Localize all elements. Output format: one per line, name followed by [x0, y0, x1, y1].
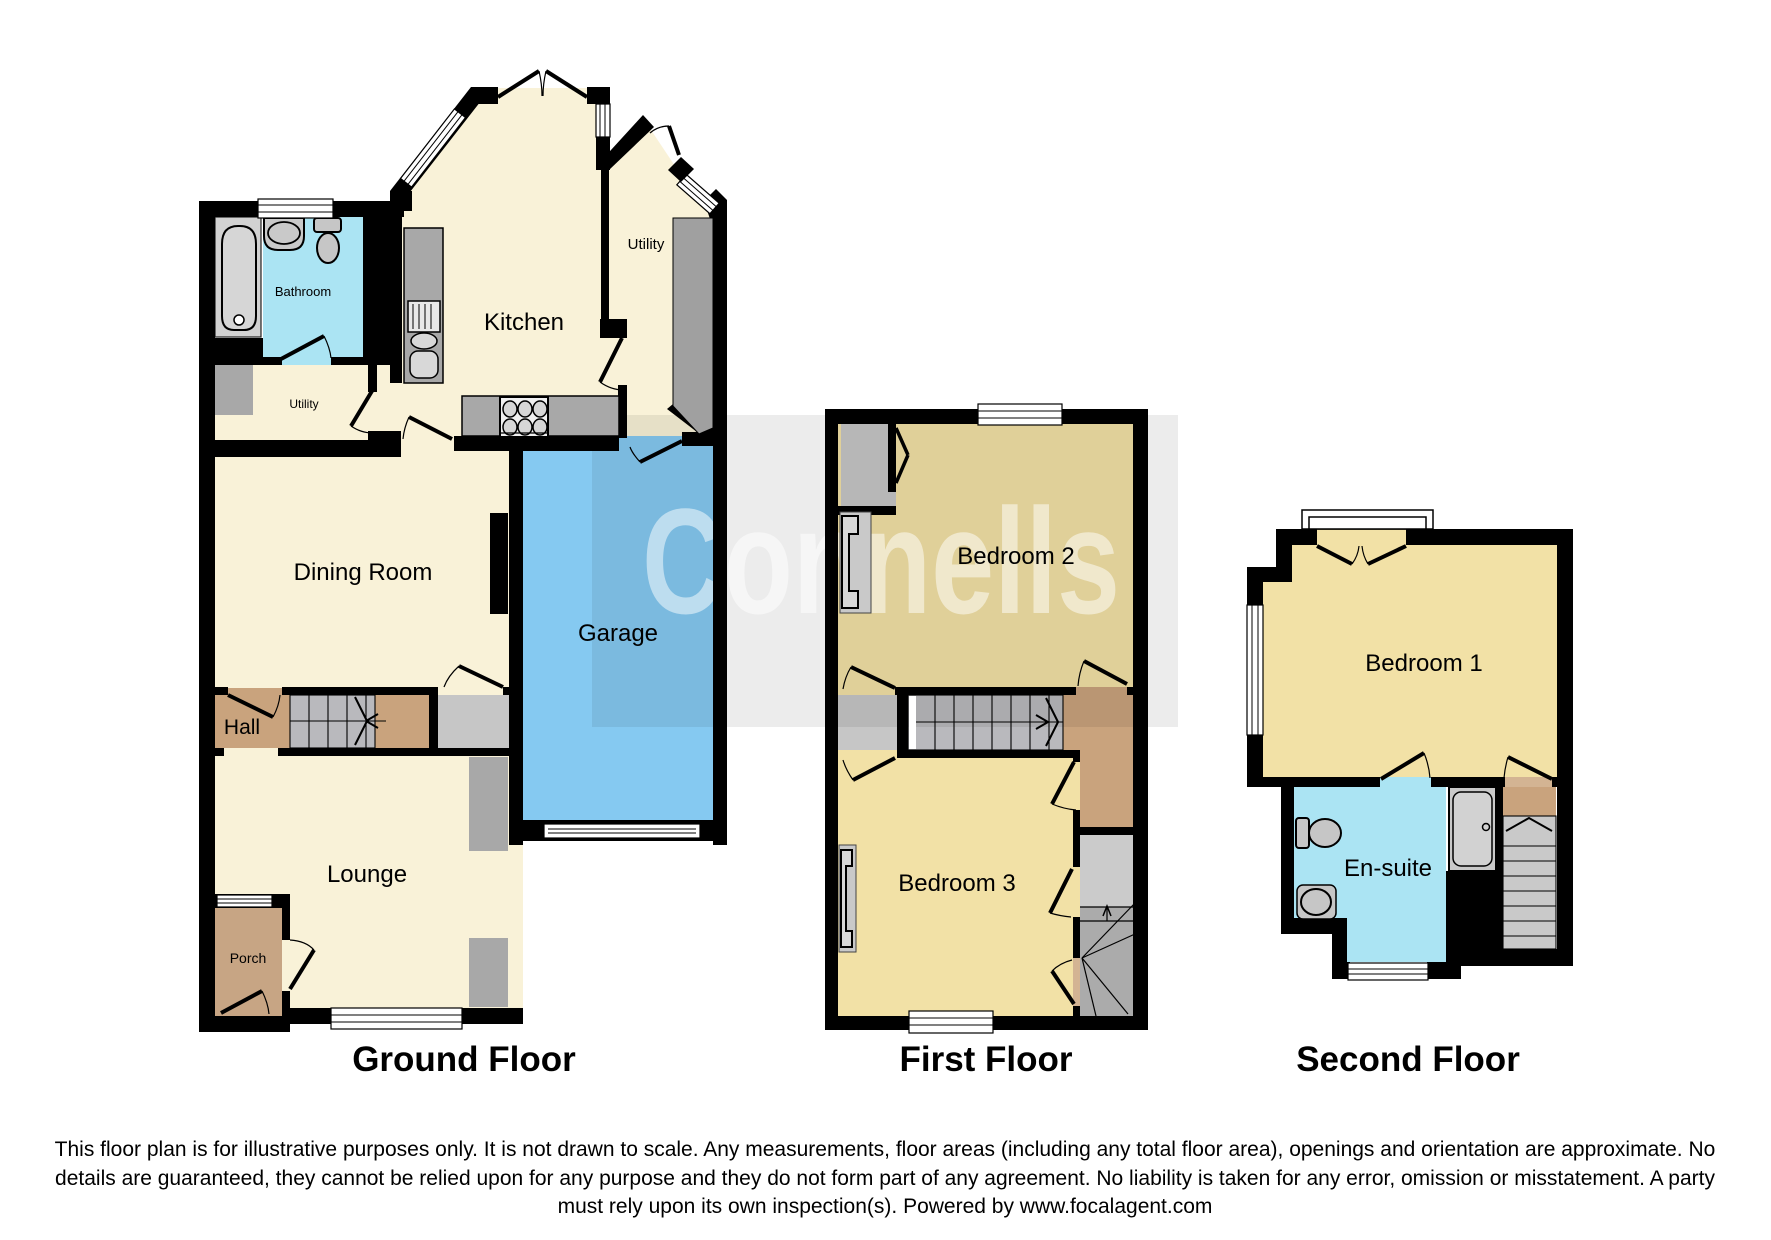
svg-text:Lounge: Lounge	[327, 861, 407, 888]
svg-text:Kitchen: Kitchen	[484, 309, 564, 336]
svg-text:Utility: Utility	[289, 397, 318, 411]
svg-text:Hall: Hall	[224, 716, 260, 739]
svg-text:Bathroom: Bathroom	[275, 284, 331, 299]
svg-text:Bedroom 1: Bedroom 1	[1365, 650, 1482, 677]
svg-text:must rely upon its own inspect: must rely upon its own inspection(s). Po…	[558, 1195, 1213, 1218]
svg-text:This floor plan is for illustr: This floor plan is for illustrative purp…	[55, 1138, 1716, 1161]
svg-text:Dining Room: Dining Room	[294, 559, 433, 586]
svg-text:Porch: Porch	[230, 950, 267, 966]
svg-text:Second Floor: Second Floor	[1296, 1040, 1520, 1079]
svg-text:First Floor: First Floor	[899, 1040, 1072, 1079]
svg-text:En-suite: En-suite	[1344, 855, 1432, 882]
svg-text:Garage: Garage	[578, 620, 658, 647]
svg-text:Ground Floor: Ground Floor	[352, 1040, 576, 1079]
svg-text:Utility: Utility	[628, 236, 665, 253]
svg-text:Bedroom 3: Bedroom 3	[898, 870, 1015, 897]
svg-text:details are guaranteed, they c: details are guaranteed, they cannot be r…	[55, 1167, 1715, 1190]
svg-text:Bedroom 2: Bedroom 2	[957, 543, 1074, 570]
